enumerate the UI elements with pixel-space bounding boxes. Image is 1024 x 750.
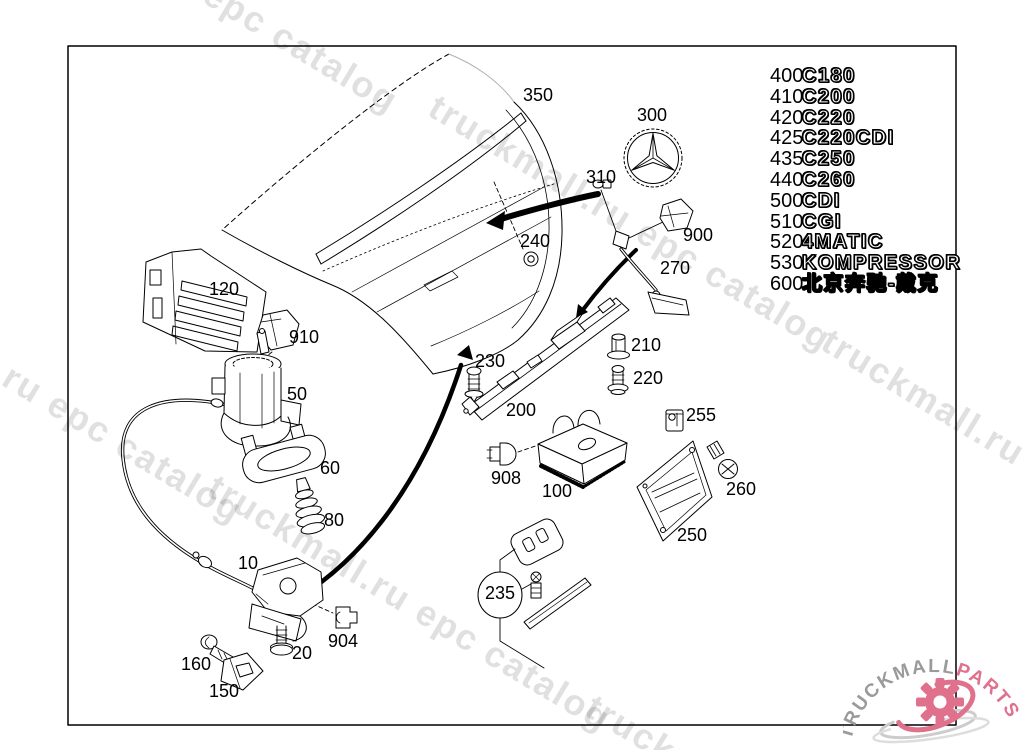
variant-row-425: 425C220CDI [770,128,961,149]
variant-code: 520 [770,232,802,253]
gear-icon [916,678,964,726]
part-label-270: 270 [660,259,690,277]
variant-row-510: 510CGI [770,212,961,233]
variant-row-435: 435C250 [770,149,961,170]
variant-code: 400 [770,66,802,87]
variant-list: 400C180410C200420C220425C220CDI435C25044… [770,66,961,295]
variant-code: 410 [770,87,802,108]
variant-name: C200 [802,87,856,108]
variant-row-420: 420C220 [770,108,961,129]
part-label-910: 910 [289,328,319,346]
part-label-10: 10 [238,554,258,572]
variant-code: 530 [770,253,802,274]
part-label-904: 904 [328,632,358,650]
variant-code: 435 [770,149,802,170]
truckmall-logo-graphic: TRUCKMALLPARTS [843,616,1024,750]
variant-name: 北京奔驰-戴克 [802,274,939,295]
part-label-210: 210 [631,336,661,354]
part-label-20: 20 [292,644,312,662]
part-label-150: 150 [209,682,239,700]
part-label-100: 100 [542,482,572,500]
part-label-230: 230 [475,352,505,370]
part-label-120: 120 [209,280,239,298]
part-label-235: 235 [485,584,515,602]
part-label-250: 250 [677,526,707,544]
part-label-60: 60 [320,459,340,477]
variant-code: 510 [770,212,802,233]
variant-name: CDI [802,191,841,212]
part-label-50: 50 [287,385,307,403]
part-label-350: 350 [523,86,553,104]
variant-code: 500 [770,191,802,212]
part-label-200: 200 [506,401,536,419]
variant-name: C220CDI [802,128,895,149]
variant-name: C220 [802,108,856,129]
truckmall-logo: TRUCKMALLPARTS [843,616,1024,750]
variant-row-400: 400C180 [770,66,961,87]
variant-code: 600 [770,274,802,295]
variant-name: C260 [802,170,856,191]
variant-row-600: 600北京奔驰-戴克 [770,274,961,295]
variant-name: 4MATIC [802,232,884,253]
part-label-160: 160 [181,655,211,673]
part-label-240: 240 [520,232,550,250]
part-label-255: 255 [686,406,716,424]
part-label-900: 900 [683,226,713,244]
variant-name: C250 [802,149,856,170]
part-label-300: 300 [637,106,667,124]
epc-diagram-page: truckmall.ru epc catalog truckmall.ru ep… [0,0,1024,750]
variant-name: CGI [802,212,842,233]
variant-code: 440 [770,170,802,191]
part-label-80: 80 [324,511,344,529]
part-label-310: 310 [586,168,616,186]
variant-row-440: 440C260 [770,170,961,191]
variant-row-410: 410C200 [770,87,961,108]
variant-row-530: 530KOMPRESSOR [770,253,961,274]
variant-row-500: 500CDI [770,191,961,212]
variant-name: KOMPRESSOR [802,253,961,274]
variant-row-520: 5204MATIC [770,232,961,253]
variant-code: 420 [770,108,802,129]
part-label-260: 260 [726,480,756,498]
part-label-908: 908 [491,469,521,487]
variant-code: 425 [770,128,802,149]
variant-name: C180 [802,66,856,87]
part-label-220: 220 [633,369,663,387]
